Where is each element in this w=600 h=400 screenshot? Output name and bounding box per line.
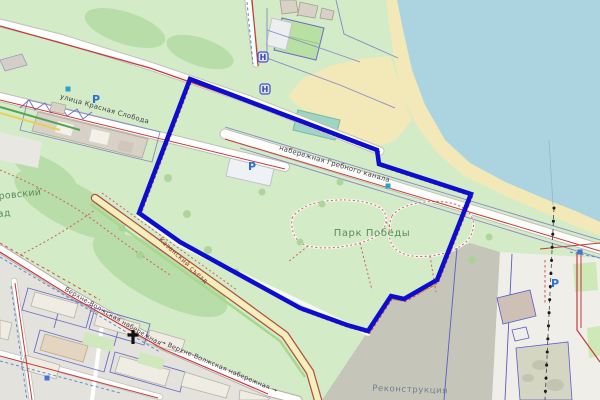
marker-square-icon[interactable]	[578, 250, 583, 255]
parking-icon[interactable]: P	[248, 160, 256, 173]
bus-stop-icon[interactable]: H	[258, 52, 268, 62]
bus-stop-icon[interactable]: H	[260, 84, 270, 94]
map-viewport[interactable]: P P P H H улица Красная Слобода набережн…	[0, 0, 600, 400]
bus-stop-icon-letter: H	[260, 53, 267, 62]
park-label-pobedy: Парк Победы	[334, 228, 411, 239]
parking-icon[interactable]: P	[551, 277, 559, 290]
bus-stop-icon-letter: H	[262, 85, 269, 94]
marker-square-icon[interactable]	[386, 184, 391, 189]
marker-square-icon[interactable]	[66, 87, 71, 92]
marker-square-icon[interactable]	[45, 376, 50, 381]
map-canvas[interactable]: P P P H H улица Красная Слобода набережн…	[0, 0, 600, 400]
garden-label-line2: ад	[0, 208, 11, 220]
